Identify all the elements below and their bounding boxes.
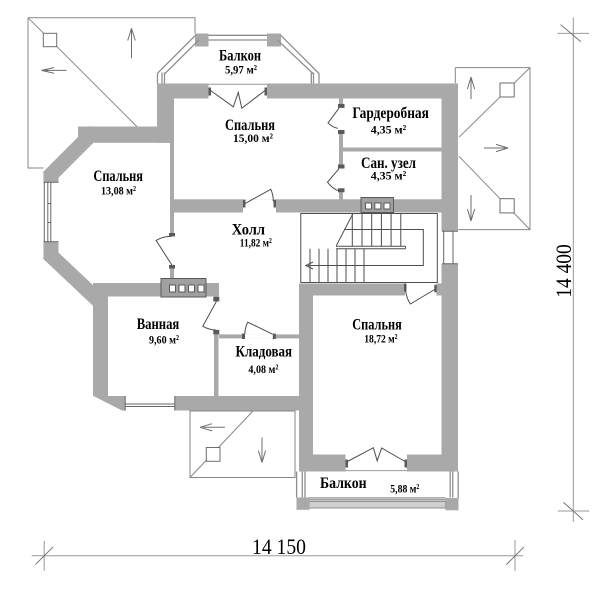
svg-text:9,60 м²: 9,60 м² (149, 333, 179, 347)
svg-text:4,08 м²: 4,08 м² (248, 362, 278, 376)
svg-text:4,35 м²: 4,35 м² (371, 169, 407, 183)
svg-text:13,08 м²: 13,08 м² (101, 183, 136, 197)
svg-text:5,88 м²: 5,88 м² (390, 482, 419, 496)
svg-text:Балкон: Балкон (320, 475, 367, 492)
svg-text:Гардеробная: Гардеробная (352, 105, 429, 122)
svg-text:15,00 м²: 15,00 м² (233, 131, 273, 145)
svg-text:Ванная: Ванная (137, 316, 180, 333)
svg-text:4,35 м²: 4,35 м² (371, 123, 407, 137)
svg-text:11,82 м²: 11,82 м² (240, 236, 272, 250)
svg-text:14 150: 14 150 (252, 534, 306, 559)
svg-text:5,97 м²: 5,97 м² (225, 63, 257, 77)
svg-text:Кладовая: Кладовая (236, 344, 293, 361)
svg-text:18,72 м²: 18,72 м² (364, 331, 398, 345)
svg-text:14 400: 14 400 (551, 244, 576, 298)
